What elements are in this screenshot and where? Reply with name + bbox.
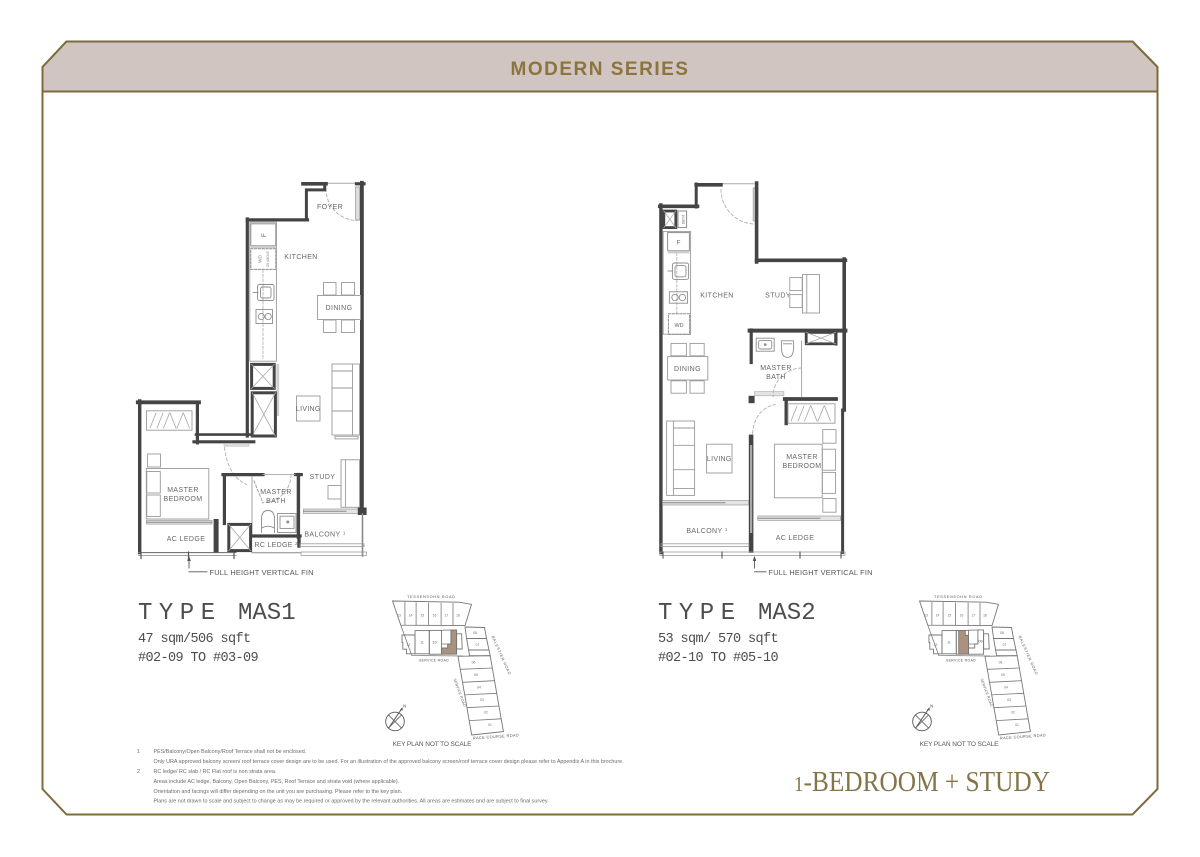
svg-text:WD: WD — [258, 254, 263, 262]
svg-text:BEDROOM: BEDROOM — [783, 463, 822, 470]
svg-text:MASTER: MASTER — [260, 489, 292, 496]
svg-text:09: 09 — [978, 640, 982, 644]
svg-text:1-BEDROOM + STUDY: 1-BEDROOM + STUDY — [794, 767, 1050, 798]
svg-text:BEDROOM: BEDROOM — [164, 496, 203, 503]
svg-text:BATH: BATH — [766, 374, 786, 381]
svg-text:Orientation and facings will d: Orientation and facings will differ depe… — [154, 789, 403, 795]
svg-text:10: 10 — [432, 641, 436, 645]
svg-text:DINING: DINING — [674, 366, 701, 373]
svg-text:2: 2 — [137, 769, 140, 775]
svg-text:DB/ST: DB/ST — [682, 214, 686, 224]
svg-text:MASTER: MASTER — [167, 487, 199, 494]
svg-text:LIVING: LIVING — [296, 406, 321, 413]
svg-text:RC LEDGE 2: RC LEDGE 2 — [255, 541, 298, 549]
svg-text:DB ABOVE: DB ABOVE — [266, 251, 270, 267]
svg-text:DINING: DINING — [326, 305, 353, 312]
svg-text:KITCHEN: KITCHEN — [700, 293, 734, 300]
svg-text:FULL HEIGHT VERTICAL FIN: FULL HEIGHT VERTICAL FIN — [769, 568, 873, 577]
svg-text:FOYER: FOYER — [317, 204, 343, 211]
svg-text:STUDY: STUDY — [310, 474, 336, 481]
svg-text:F: F — [677, 240, 681, 247]
svg-text:MASTER: MASTER — [760, 365, 792, 372]
svg-text:TYPE: TYPE — [138, 600, 222, 627]
svg-text:PES/Balcony/Open Balcony/Roof: PES/Balcony/Open Balcony/Roof Terrace sh… — [154, 749, 307, 755]
svg-text:STUDY: STUDY — [765, 293, 791, 300]
svg-text:WD: WD — [675, 323, 684, 329]
svg-text:MODERN SERIES: MODERN SERIES — [511, 59, 690, 80]
svg-text:1: 1 — [137, 749, 140, 755]
svg-text:Plans are not drawn to scale a: Plans are not drawn to scale and subject… — [154, 799, 549, 805]
svg-text:BALCONY 1: BALCONY 1 — [686, 527, 727, 535]
svg-text:TYPE: TYPE — [658, 600, 742, 627]
svg-text:FULL HEIGHT VERTICAL FIN: FULL HEIGHT VERTICAL FIN — [210, 568, 314, 577]
svg-text:53 sqm/ 570 sqft: 53 sqm/ 570 sqft — [658, 632, 778, 647]
svg-text:47 sqm/506 sqft: 47 sqm/506 sqft — [138, 632, 251, 647]
svg-text:Only URA approved balcony scre: Only URA approved balcony screen/ roof t… — [154, 759, 624, 765]
svg-text:MAS1: MAS1 — [238, 600, 296, 627]
svg-text:BATH: BATH — [266, 498, 286, 505]
svg-text:KITCHEN: KITCHEN — [284, 254, 318, 261]
svg-text:AC LEDGE: AC LEDGE — [776, 535, 815, 542]
svg-text:Areas include AC ledge, Balcon: Areas include AC ledge, Balcony, Open Ba… — [154, 779, 400, 785]
svg-text:F: F — [261, 233, 268, 237]
svg-text:MAS2: MAS2 — [758, 600, 816, 627]
svg-text:LIVING: LIVING — [707, 456, 732, 463]
svg-text:BALCONY 1: BALCONY 1 — [304, 531, 345, 539]
svg-text:RC ledge/ RC slab / RC Flat ro: RC ledge/ RC slab / RC Flat roof is non … — [154, 769, 277, 775]
svg-text:AC LEDGE: AC LEDGE — [167, 536, 206, 543]
svg-text:#02-09 TO #03-09: #02-09 TO #03-09 — [138, 651, 259, 666]
svg-text:MASTER: MASTER — [786, 454, 818, 461]
svg-text:#02-10 TO #05-10: #02-10 TO #05-10 — [658, 651, 779, 666]
